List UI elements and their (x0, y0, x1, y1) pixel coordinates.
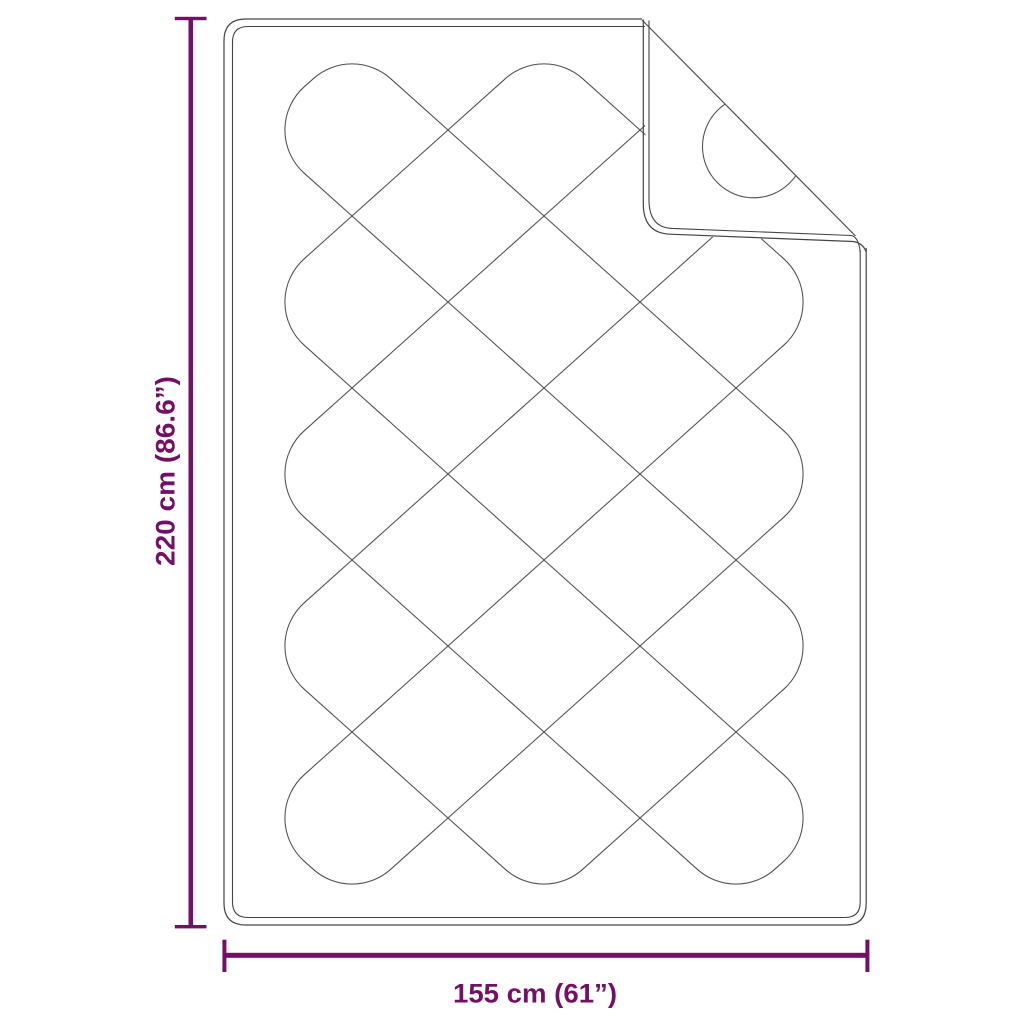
svg-text:220 cm (86.6”): 220 cm (86.6”) (151, 376, 181, 566)
svg-text:155 cm (61”): 155 cm (61”) (453, 979, 617, 1009)
